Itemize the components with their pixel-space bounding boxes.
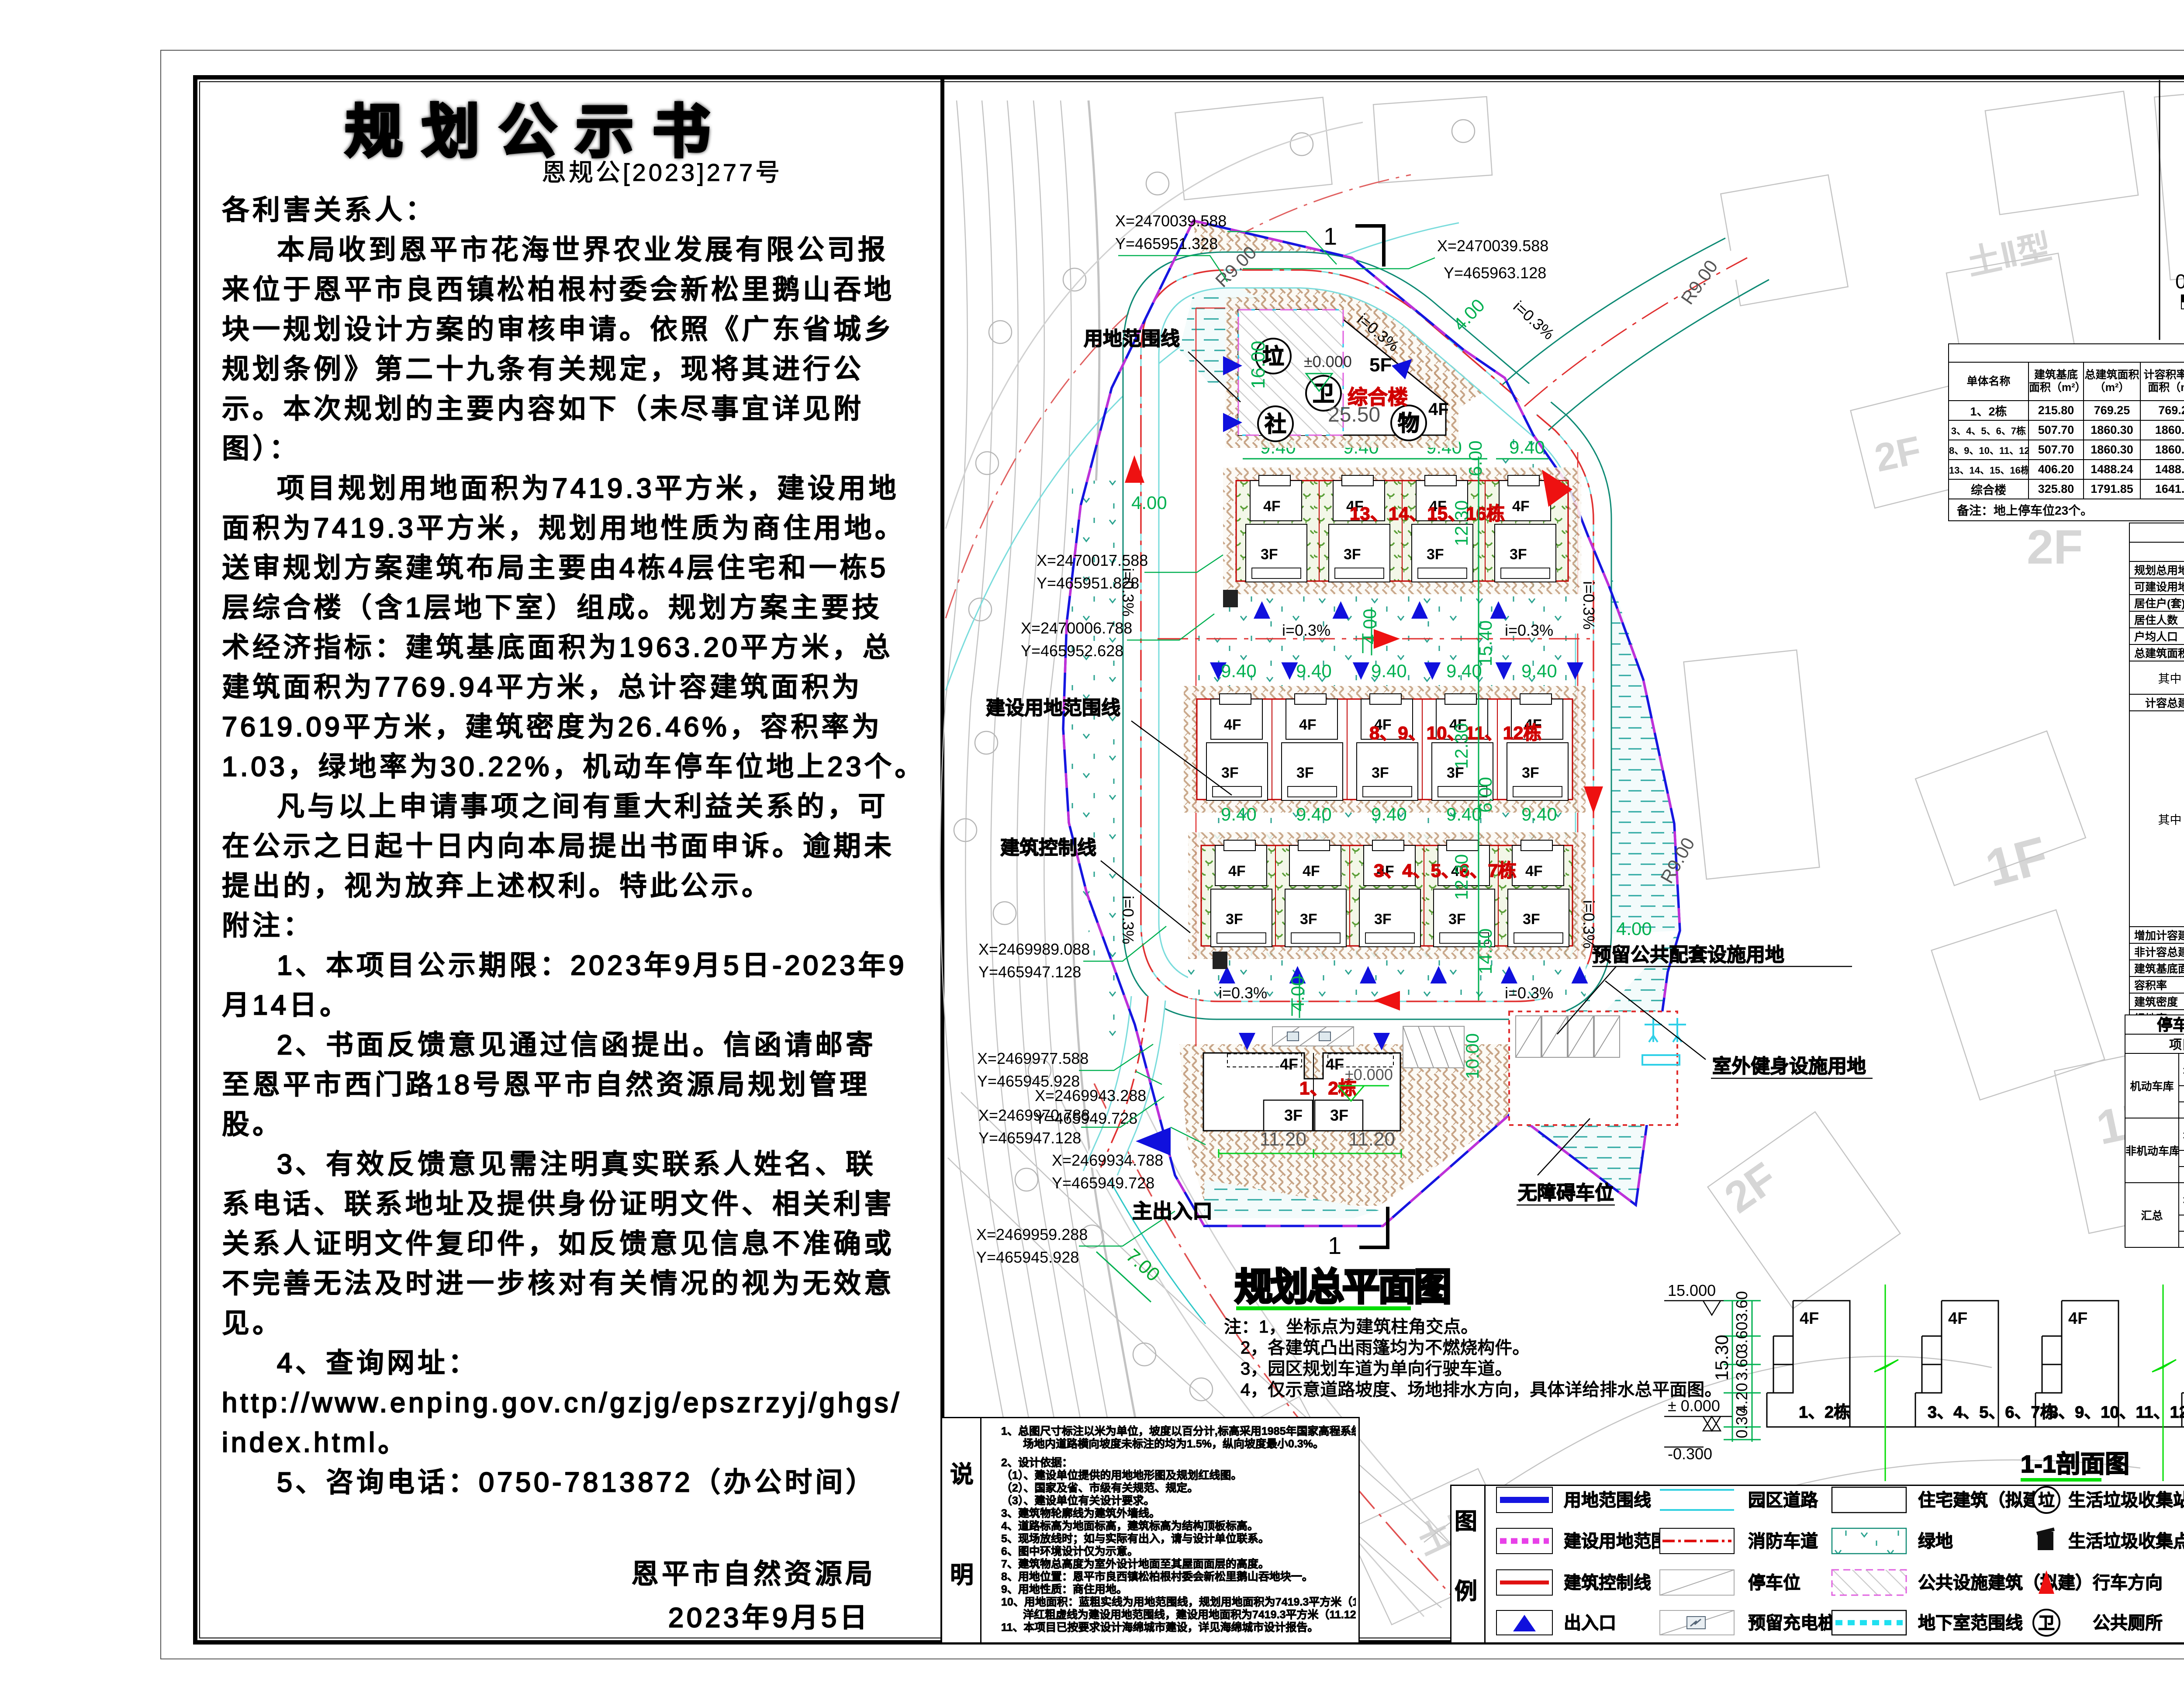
svg-text:4F: 4F: [2068, 1309, 2087, 1328]
svg-text:X=2470039.588: X=2470039.588: [1437, 237, 1548, 255]
svg-text:±0.000: ±0.000: [1345, 1066, 1393, 1084]
svg-text:i=0.3%: i=0.3%: [1580, 581, 1598, 630]
svg-text:主出入口: 主出入口: [1132, 1200, 1213, 1222]
svg-text:3F: 3F: [1427, 546, 1444, 563]
svg-text:i=0.3%: i=0.3%: [1505, 621, 1553, 639]
svg-text:11.20: 11.20: [1260, 1129, 1306, 1150]
svg-text:用地范围线: 用地范围线: [1564, 1491, 1651, 1510]
svg-text:3.60: 3.60: [1733, 1322, 1751, 1352]
svg-text:4F: 4F: [1525, 863, 1543, 879]
svg-text:3F: 3F: [1296, 765, 1314, 781]
svg-text:9.40: 9.40: [1371, 661, 1407, 681]
svg-text:4F: 4F: [1224, 717, 1241, 733]
svg-text:i=0.3%: i=0.3%: [1510, 297, 1558, 343]
svg-text:9.40: 9.40: [1509, 437, 1545, 457]
svg-text:3F: 3F: [1523, 911, 1540, 928]
svg-text:0.30: 0.30: [1733, 1408, 1751, 1438]
svg-text:4F: 4F: [1512, 498, 1530, 515]
svg-text:16.00: 16.00: [1248, 341, 1269, 389]
svg-text:无障碍车位: 无障碍车位: [1518, 1182, 1614, 1204]
svg-text:9.40: 9.40: [1371, 804, 1407, 824]
svg-text:X=2469989.088: X=2469989.088: [978, 940, 1090, 958]
svg-text:生活垃圾收集点: 生活垃圾收集点: [2068, 1532, 2184, 1551]
svg-text:建筑控制线: 建筑控制线: [1000, 837, 1096, 859]
svg-text:X=2469943.288: X=2469943.288: [1035, 1087, 1146, 1105]
svg-text:12.30: 12.30: [1451, 854, 1472, 900]
svg-text:X=2469934.788: X=2469934.788: [1052, 1151, 1163, 1169]
svg-text:4F: 4F: [1228, 863, 1246, 879]
svg-text:9.40: 9.40: [1521, 661, 1557, 681]
svg-text:10.00: 10.00: [1462, 1033, 1482, 1079]
svg-text:3F: 3F: [1372, 765, 1389, 781]
svg-text:Y=465949.728: Y=465949.728: [1035, 1109, 1137, 1127]
svg-text:X=2469959.288: X=2469959.288: [976, 1226, 1088, 1243]
svg-text:1F: 1F: [1980, 825, 2054, 898]
svg-text:X=2469977.588: X=2469977.588: [977, 1049, 1089, 1067]
svg-text:15.000: 15.000: [1668, 1281, 1716, 1299]
svg-text:14.50: 14.50: [1475, 928, 1496, 974]
svg-text:4.00: 4.00: [1131, 492, 1167, 513]
svg-text:用地范围线: 用地范围线: [1084, 328, 1180, 350]
svg-text:Y=465951.328: Y=465951.328: [1115, 235, 1218, 253]
svg-text:3F: 3F: [1226, 911, 1243, 928]
svg-text:12.30: 12.30: [1451, 500, 1472, 546]
svg-text:垃: 垃: [2038, 1492, 2055, 1510]
svg-text:Y=465947.128: Y=465947.128: [978, 963, 1081, 981]
svg-text:绿地: 绿地: [1918, 1532, 1953, 1551]
svg-text:i=0.3%: i=0.3%: [1282, 621, 1330, 639]
svg-text:9.40: 9.40: [1221, 804, 1257, 824]
svg-text:3，园区规划车道为单向行驶车道。: 3，园区规划车道为单向行驶车道。: [1241, 1359, 1512, 1378]
svg-text:3F: 3F: [1510, 546, 1527, 563]
svg-text:i=0.3%: i=0.3%: [1580, 900, 1598, 949]
svg-text:2，各建筑凸出雨篷均为不燃烧构件。: 2，各建筑凸出雨篷均为不燃烧构件。: [1241, 1338, 1530, 1357]
svg-text:公共设施建筑（拟建）: 公共设施建筑（拟建）: [1918, 1573, 2093, 1593]
svg-text:5F: 5F: [1369, 354, 1392, 376]
svg-text:11.20: 11.20: [1348, 1129, 1395, 1150]
svg-text:2F: 2F: [1871, 428, 1925, 481]
svg-text:3F: 3F: [1330, 1106, 1348, 1124]
svg-text:25.50: 25.50: [1328, 403, 1380, 426]
svg-text:8、9、10、11、12栋: 8、9、10、11、12栋: [2049, 1403, 2184, 1422]
svg-text:Y=465947.128: Y=465947.128: [978, 1129, 1081, 1147]
svg-text:1、2栋: 1、2栋: [1799, 1403, 1850, 1422]
svg-text:Y=465949.728: Y=465949.728: [1052, 1174, 1154, 1192]
svg-text:建筑控制线: 建筑控制线: [1564, 1573, 1651, 1593]
svg-text:4.00: 4.00: [1287, 976, 1308, 1011]
svg-text:3F: 3F: [1221, 765, 1239, 781]
svg-text:± 0.000: ± 0.000: [1668, 1397, 1720, 1415]
svg-text:3F: 3F: [1344, 546, 1361, 563]
svg-text:12.30: 12.30: [1451, 723, 1472, 769]
svg-text:1: 1: [1324, 222, 1337, 250]
svg-text:X=2470017.588: X=2470017.588: [1037, 551, 1148, 569]
svg-text:室外健身设施用地: 室外健身设施用地: [1712, 1055, 1866, 1077]
svg-text:卫: 卫: [2038, 1614, 2055, 1633]
svg-text:注：1，坐标点为建筑柱角交点。: 注：1，坐标点为建筑柱角交点。: [1224, 1317, 1478, 1337]
svg-text:4F: 4F: [1280, 1055, 1298, 1073]
svg-text:9.40: 9.40: [1296, 661, 1332, 681]
svg-text:土Ⅱ型: 土Ⅱ型: [1963, 227, 2054, 282]
svg-text:Y=465951.828: Y=465951.828: [1037, 574, 1139, 592]
svg-text:7.00: 7.00: [1122, 1245, 1164, 1286]
svg-text:4.00: 4.00: [1616, 918, 1652, 939]
svg-text:生活垃圾收集站: 生活垃圾收集站: [2068, 1491, 2184, 1510]
svg-text:15.40: 15.40: [1475, 620, 1496, 666]
svg-text:±0.000: ±0.000: [1304, 353, 1352, 370]
svg-text:4F: 4F: [1303, 863, 1320, 879]
svg-text:1: 1: [1328, 1232, 1341, 1259]
svg-text:3、4、5、6、7栋: 3、4、5、6、7栋: [1374, 860, 1517, 881]
svg-text:4F: 4F: [1428, 400, 1449, 419]
svg-text:3F: 3F: [1261, 546, 1278, 563]
svg-text:3F: 3F: [1284, 1106, 1303, 1124]
svg-text:3F: 3F: [1522, 765, 1539, 781]
svg-text:3F: 3F: [1448, 911, 1466, 928]
svg-text:3.60: 3.60: [1733, 1291, 1751, 1322]
svg-text:Y=465952.628: Y=465952.628: [1021, 642, 1123, 660]
svg-text:X=2470039.588: X=2470039.588: [1115, 212, 1227, 230]
svg-text:2F: 2F: [1716, 1153, 1786, 1222]
svg-text:3.60: 3.60: [1733, 1350, 1751, 1381]
svg-text:社: 社: [1265, 412, 1286, 436]
svg-text:地下室范围线: 地下室范围线: [1918, 1614, 2023, 1633]
svg-text:规划总平面图: 规划总平面图: [1235, 1266, 1450, 1308]
svg-text:9.40: 9.40: [1221, 661, 1257, 681]
svg-text:6.00: 6.00: [1475, 777, 1496, 813]
svg-text:公共厕所: 公共厕所: [2093, 1614, 2163, 1633]
svg-text:4F: 4F: [1326, 1055, 1344, 1073]
svg-text:1-1剖面图: 1-1剖面图: [2021, 1450, 2129, 1478]
svg-text:4F: 4F: [1263, 498, 1281, 515]
svg-text:建设用地范围线: 建设用地范围线: [986, 697, 1120, 719]
svg-text:行车方向: 行车方向: [2093, 1573, 2163, 1593]
svg-text:3F: 3F: [1374, 911, 1392, 928]
svg-text:0: 0: [2175, 270, 2184, 293]
svg-text:园区道路: 园区道路: [1748, 1491, 1818, 1510]
svg-text:预留公共配套设施用地: 预留公共配套设施用地: [1592, 944, 1784, 966]
svg-text:15.30: 15.30: [1711, 1335, 1732, 1381]
svg-text:4，仅示意道路坡度、场地排水方向，具体详给排水总平面图。: 4，仅示意道路坡度、场地排水方向，具体详给排水总平面图。: [1241, 1380, 1722, 1399]
svg-text:4F: 4F: [1800, 1309, 1819, 1328]
svg-text:物: 物: [1398, 411, 1420, 436]
svg-text:出入口: 出入口: [1564, 1614, 1616, 1633]
svg-text:13、14、15、16栋: 13、14、15、16栋: [1350, 503, 1505, 524]
svg-text:2F: 2F: [2027, 520, 2083, 574]
svg-text:4F: 4F: [1948, 1309, 1967, 1328]
svg-text:9.40: 9.40: [1521, 804, 1557, 824]
svg-text:Y=465963.128: Y=465963.128: [1444, 264, 1546, 282]
svg-text:X=2470006.788: X=2470006.788: [1021, 619, 1132, 637]
svg-text:3F: 3F: [1300, 911, 1317, 928]
svg-text:消防车道: 消防车道: [1748, 1532, 1818, 1551]
svg-text:4F: 4F: [1299, 717, 1317, 733]
svg-text:i=0.3%: i=0.3%: [1219, 984, 1267, 1002]
svg-text:3、4、5、6、7栋: 3、4、5、6、7栋: [1928, 1403, 2057, 1422]
svg-text:i=0.3%: i=0.3%: [1119, 896, 1137, 944]
svg-text:i=0.3%: i=0.3%: [1505, 984, 1553, 1002]
svg-text:Y=465945.928: Y=465945.928: [976, 1248, 1079, 1266]
svg-text:9.40: 9.40: [1296, 804, 1332, 824]
svg-text:停车位: 停车位: [1748, 1573, 1800, 1593]
